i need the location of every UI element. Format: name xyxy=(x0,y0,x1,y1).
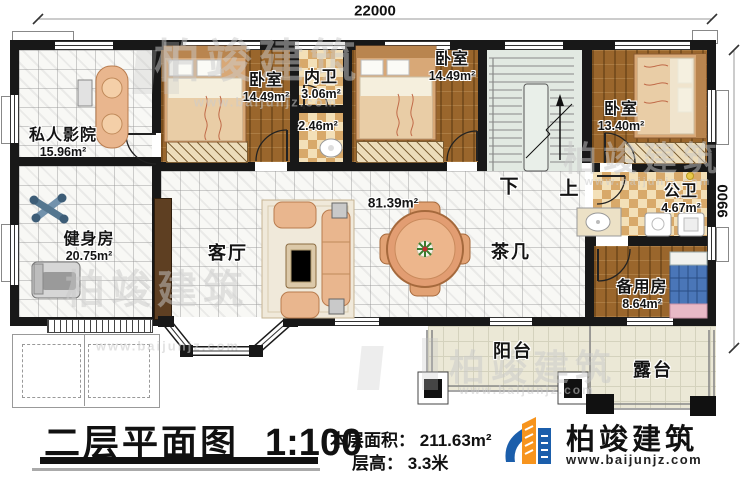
dimension-height: 9900 xyxy=(715,184,732,217)
room-label-living-area: 81.39m² xyxy=(368,195,418,210)
floor-plan-page: 柏竣建筑 www.baijunjz.com 柏竣建筑 www.baijunjz.… xyxy=(0,0,750,482)
room-label-closet: 2.46m² xyxy=(298,119,338,133)
bed-icon xyxy=(634,54,706,138)
room-label-balcony: 阳台 xyxy=(493,341,533,361)
room-label-gym: 健身房 20.75m² xyxy=(63,231,114,263)
dumbbell-icon xyxy=(30,194,69,224)
bed-icon xyxy=(356,46,436,140)
watermark-url: www.baijunjz.com xyxy=(96,339,240,354)
toilet-icon xyxy=(320,139,342,157)
room-label-living: 客厅 xyxy=(208,243,248,263)
dining-table-icon xyxy=(380,202,470,296)
room-label-tea-table: 茶几 xyxy=(491,242,531,262)
room-label-spare-room: 备用房 8.64m² xyxy=(616,279,667,311)
dimension-width: 22000 xyxy=(354,3,396,20)
floor-area-row: 本层面积： 211.63m² xyxy=(330,426,492,451)
room-label-cinema: 私人影院 15.96m² xyxy=(29,127,97,159)
room-label-public-bath: 公卫 4.67m² xyxy=(661,183,701,215)
watermark-text: 柏竣建筑 xyxy=(65,257,249,315)
stair-down-label: 下 xyxy=(499,176,518,197)
washbasin-icon xyxy=(577,208,621,236)
brand-logo-icon xyxy=(498,412,562,472)
room-label-terrace: 露台 xyxy=(633,360,673,380)
staircase xyxy=(489,58,574,171)
spare-bed-icon xyxy=(670,252,707,318)
floor-height-row: 层高： 3.3米 xyxy=(352,449,448,474)
sofa-set-icon xyxy=(262,200,354,318)
stair-up-label: 上 xyxy=(559,178,578,199)
brand-website: www.baijunjz.com xyxy=(566,452,702,467)
room-label-bedroom2: 卧室 14.49m² xyxy=(429,51,476,83)
room-label-inner-bath: 内卫 3.06m² xyxy=(301,69,341,101)
title-underline xyxy=(40,457,318,464)
room-label-bedroom1: 卧室 14.49m² xyxy=(243,72,290,104)
watermark-url: www.baijunjz.com xyxy=(459,383,595,397)
room-label-bedroom3: 卧室 13.40m² xyxy=(598,101,645,133)
watermark-text: 柏竣建筑 xyxy=(563,132,723,181)
title-underline-shadow xyxy=(32,468,320,471)
